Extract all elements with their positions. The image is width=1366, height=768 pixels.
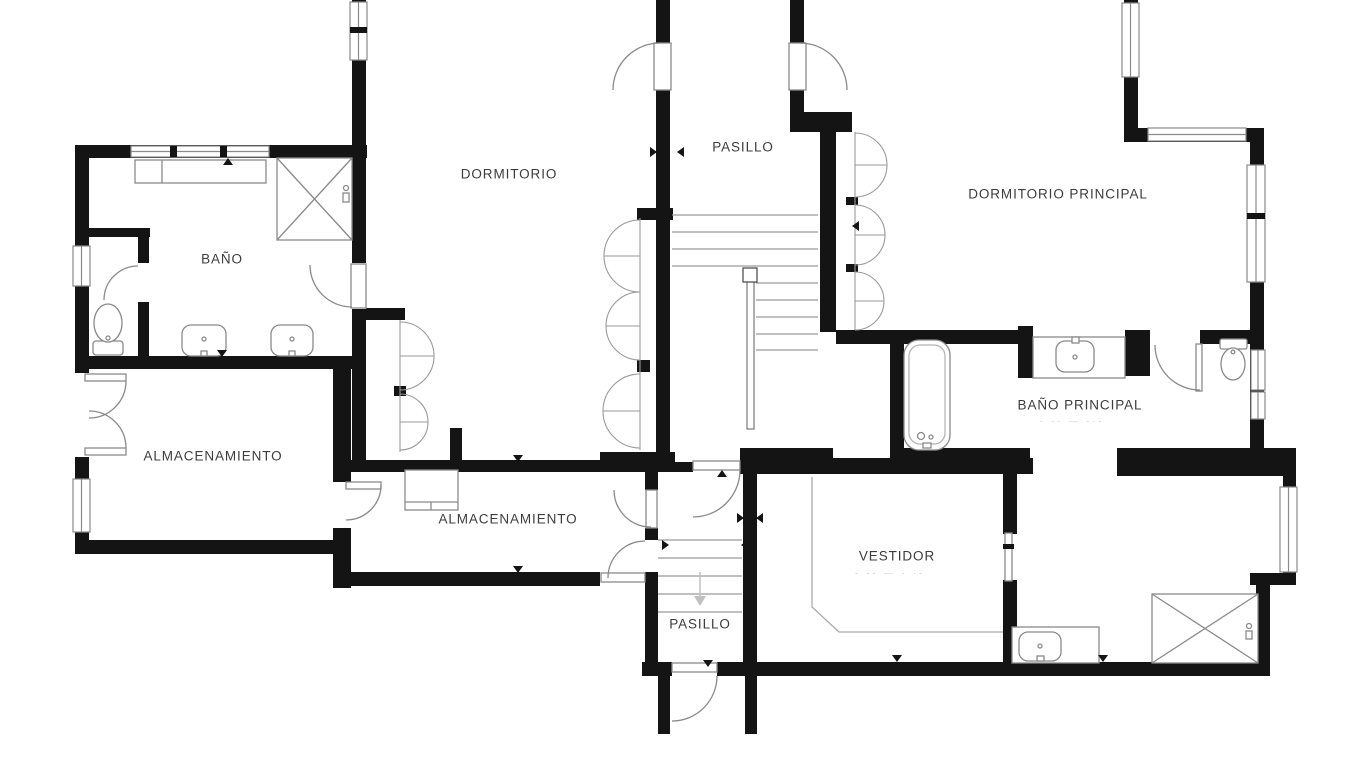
door-arc-icon bbox=[104, 266, 138, 300]
shower-icon bbox=[277, 158, 352, 240]
room-dimensions-faded: - -- — - ·- bbox=[855, 568, 925, 578]
sink-icon bbox=[271, 325, 313, 356]
window-icon bbox=[73, 479, 90, 532]
sliding-door-icon bbox=[1003, 533, 1014, 581]
cabinet bbox=[405, 470, 458, 510]
window-icon bbox=[1122, 3, 1139, 77]
wardrobe-doors-icon bbox=[603, 218, 640, 450]
door-arc-icon bbox=[310, 264, 366, 308]
room-label-pasillo-bottom: PASILLO bbox=[666, 617, 734, 632]
door-arc-icon bbox=[613, 43, 671, 90]
window-icon bbox=[350, 2, 367, 60]
door-arc-icon bbox=[672, 663, 717, 721]
threshold-markers bbox=[77, 147, 1108, 667]
floor-plan-drawing bbox=[0, 0, 1366, 768]
toilet-icon bbox=[1220, 339, 1247, 380]
stair-direction-arrow-icon bbox=[694, 596, 706, 606]
door-arc-icon bbox=[601, 541, 645, 582]
room-label-almacenamiento-center: ALMACENAMIENTO bbox=[438, 512, 577, 527]
shower-icon bbox=[1152, 594, 1258, 663]
sink-icon bbox=[1056, 337, 1094, 372]
door-arc-icon bbox=[1155, 344, 1202, 391]
counter bbox=[135, 160, 266, 183]
door-arc-icon bbox=[85, 374, 126, 455]
stairs-upper bbox=[672, 215, 818, 429]
room-label-vestidor: VESTIDOR bbox=[859, 549, 935, 564]
room-label-bano: BAÑO bbox=[201, 252, 243, 267]
room-dimensions-faded: - -- — -·- bbox=[1040, 416, 1104, 426]
toilet-icon bbox=[93, 304, 123, 355]
stairs-lower bbox=[658, 540, 742, 612]
window-icon bbox=[1148, 128, 1246, 141]
room-label-almacenamiento-left: ALMACENAMIENTO bbox=[143, 449, 282, 464]
window-icon bbox=[1251, 392, 1265, 419]
window-icon bbox=[1251, 350, 1265, 390]
wall-openings bbox=[75, 263, 366, 528]
windows bbox=[73, 2, 1297, 572]
window-icon bbox=[73, 246, 90, 286]
window-icon bbox=[1247, 165, 1265, 282]
door-arc-icon bbox=[693, 461, 740, 517]
room-label-dormitorio: DORMITORIO bbox=[461, 167, 558, 182]
door-arc-icon bbox=[789, 43, 847, 90]
floor-plan: BAÑO DORMITORIO PASILLO DORMITORIO PRINC… bbox=[0, 0, 1366, 768]
bathtub-icon bbox=[904, 340, 950, 450]
doors bbox=[85, 43, 1202, 721]
door-arc-icon bbox=[614, 490, 657, 528]
room-label-pasillo-top: PASILLO bbox=[712, 140, 774, 155]
room-label-bano-principal: BAÑO PRINCIPAL bbox=[1018, 398, 1143, 413]
door-arc-icon bbox=[346, 482, 381, 520]
window-icon bbox=[1280, 487, 1297, 572]
room-label-dormitorio-principal: DORMITORIO PRINCIPAL bbox=[968, 187, 1148, 202]
window-icon bbox=[131, 146, 269, 157]
wardrobe-doors-icon bbox=[855, 132, 887, 330]
sink-icon bbox=[1019, 632, 1061, 661]
